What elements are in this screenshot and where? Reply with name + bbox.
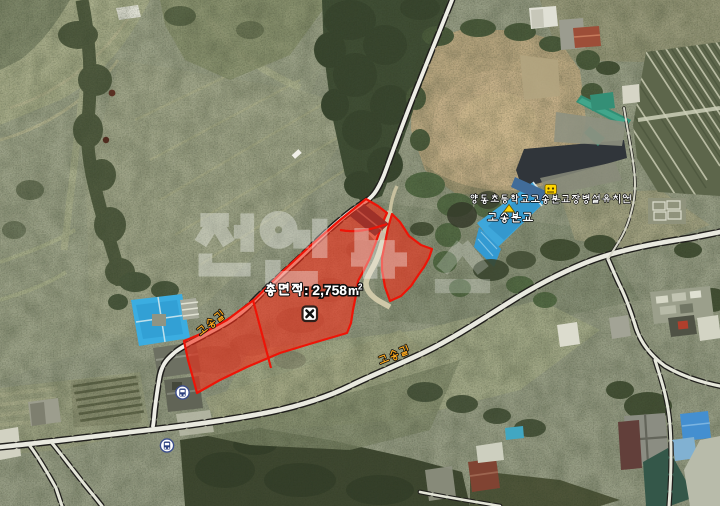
svg-text:: 2,758: : 2,758 xyxy=(304,283,347,298)
svg-text:2: 2 xyxy=(358,283,363,292)
